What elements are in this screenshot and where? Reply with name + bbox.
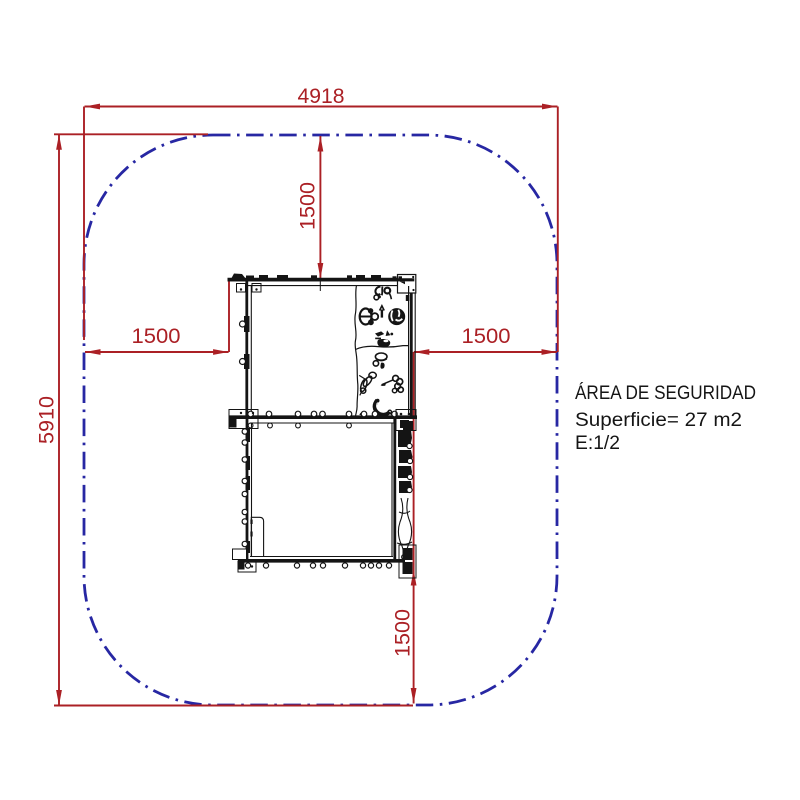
svg-text:ÁREA DE SEGURIDAD: ÁREA DE SEGURIDAD	[575, 383, 756, 404]
svg-text:1500: 1500	[296, 182, 320, 230]
svg-text:1500: 1500	[391, 609, 415, 657]
svg-text:5910: 5910	[35, 396, 59, 444]
svg-text:4918: 4918	[298, 84, 345, 108]
svg-text:1500: 1500	[132, 324, 181, 348]
svg-text:Superficie= 27 m2: Superficie= 27 m2	[575, 410, 742, 431]
svg-text:E:1/2: E:1/2	[575, 433, 620, 454]
svg-text:1500: 1500	[462, 324, 511, 348]
